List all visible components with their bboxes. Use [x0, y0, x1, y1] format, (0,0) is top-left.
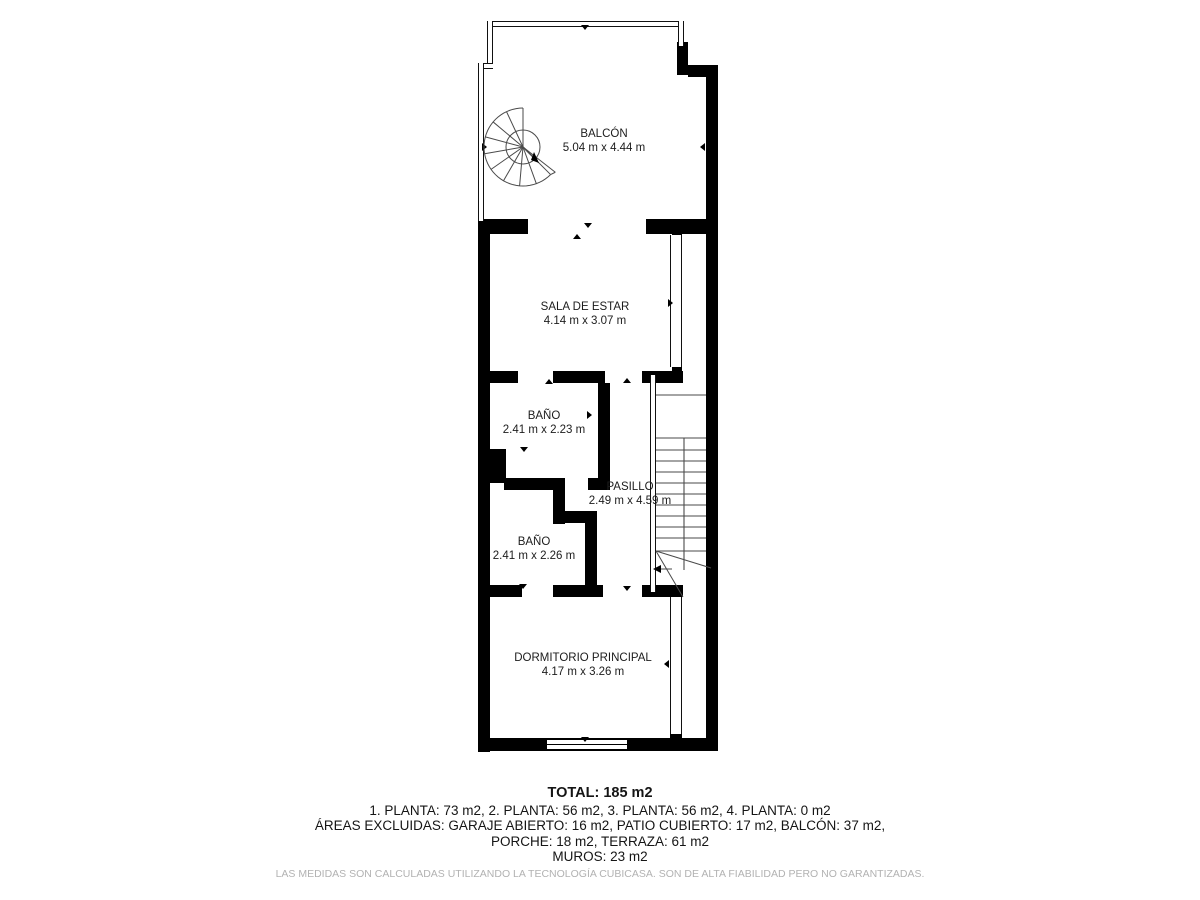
- room-name: BAÑO: [503, 410, 585, 424]
- door-marker: [581, 25, 589, 30]
- door-marker: [517, 485, 525, 490]
- disclaimer-text: LAS MEDIDAS SON CALCULADAS UTILIZANDO LA…: [0, 868, 1200, 880]
- room-name: BAÑO: [493, 536, 575, 550]
- summary-areas-excluidas: ÁREAS EXCLUIDAS: GARAJE ABIERTO: 16 m2, …: [0, 818, 1200, 833]
- door-marker: [587, 411, 592, 419]
- balcony-railing: [678, 21, 684, 46]
- door-marker: [581, 737, 589, 742]
- room-dimensions: 4.17 m x 3.26 m: [514, 666, 652, 680]
- room-name: SALA DE ESTAR: [541, 301, 630, 315]
- room-name: BALCÓN: [563, 128, 645, 142]
- summary-porche-terraza: PORCHE: 18 m2, TERRAZA: 61 m2: [0, 834, 1200, 849]
- door-marker: [623, 586, 631, 591]
- floor-plan: BALCÓN5.04 m x 4.44 mSALA DE ESTAR4.14 m…: [0, 0, 1200, 900]
- door-marker: [668, 299, 673, 307]
- room-dimensions: 2.41 m x 2.23 m: [503, 424, 585, 438]
- wall: [688, 65, 718, 77]
- door-marker: [664, 660, 669, 668]
- glass-partition: [670, 597, 682, 734]
- wall: [553, 371, 605, 383]
- room-dimensions: 2.49 m x 4.59 m: [589, 495, 671, 509]
- summary-total: TOTAL: 185 m2: [0, 786, 1200, 801]
- room-dimensions: 4.14 m x 3.07 m: [541, 315, 630, 329]
- room-dimensions: 5.04 m x 4.44 m: [563, 142, 645, 156]
- door-marker: [545, 379, 553, 384]
- door-marker: [700, 143, 705, 151]
- room-label-bano-1: BAÑO2.41 m x 2.23 m: [503, 410, 585, 437]
- floorplan-page: BALCÓN5.04 m x 4.44 mSALA DE ESTAR4.14 m…: [0, 0, 1200, 900]
- room-label-sala-de-estar: SALA DE ESTAR4.14 m x 3.07 m: [541, 301, 630, 328]
- balcony-railing: [487, 21, 493, 69]
- wall: [553, 585, 603, 597]
- wall: [677, 42, 688, 75]
- door-marker: [598, 384, 606, 389]
- door-marker: [519, 584, 527, 589]
- summary-plantas: 1. PLANTA: 73 m2, 2. PLANTA: 56 m2, 3. P…: [0, 803, 1200, 818]
- wall: [484, 371, 518, 383]
- room-label-bano-2: BAÑO2.41 m x 2.26 m: [493, 536, 575, 563]
- door-marker: [483, 660, 488, 668]
- room-label-pasillo: PASILLO2.49 m x 4.59 m: [589, 481, 671, 508]
- door-marker: [482, 143, 487, 151]
- door-marker: [482, 299, 487, 307]
- room-label-dormitorio-principal: DORMITORIO PRINCIPAL4.17 m x 3.26 m: [514, 652, 652, 679]
- room-name: PASILLO: [589, 481, 671, 495]
- wall: [484, 585, 522, 597]
- room-name: DORMITORIO PRINCIPAL: [514, 652, 652, 666]
- door-marker: [520, 447, 528, 452]
- room-dimensions: 2.41 m x 2.26 m: [493, 550, 575, 564]
- wall: [706, 68, 718, 751]
- room-label-balcon: BALCÓN5.04 m x 4.44 m: [563, 128, 645, 155]
- summary-muros: MUROS: 23 m2: [0, 849, 1200, 864]
- door-marker: [479, 549, 484, 557]
- balcony-railing: [478, 63, 484, 221]
- wall: [478, 219, 528, 234]
- window-pane-line: [547, 744, 627, 745]
- wall: [598, 383, 610, 490]
- door-marker: [623, 378, 631, 383]
- door-marker: [708, 384, 713, 392]
- wall: [642, 585, 683, 597]
- door-marker: [573, 234, 581, 239]
- door-marker: [584, 223, 592, 228]
- door-marker: [482, 413, 487, 421]
- wall: [481, 449, 506, 483]
- door-marker: [588, 553, 593, 561]
